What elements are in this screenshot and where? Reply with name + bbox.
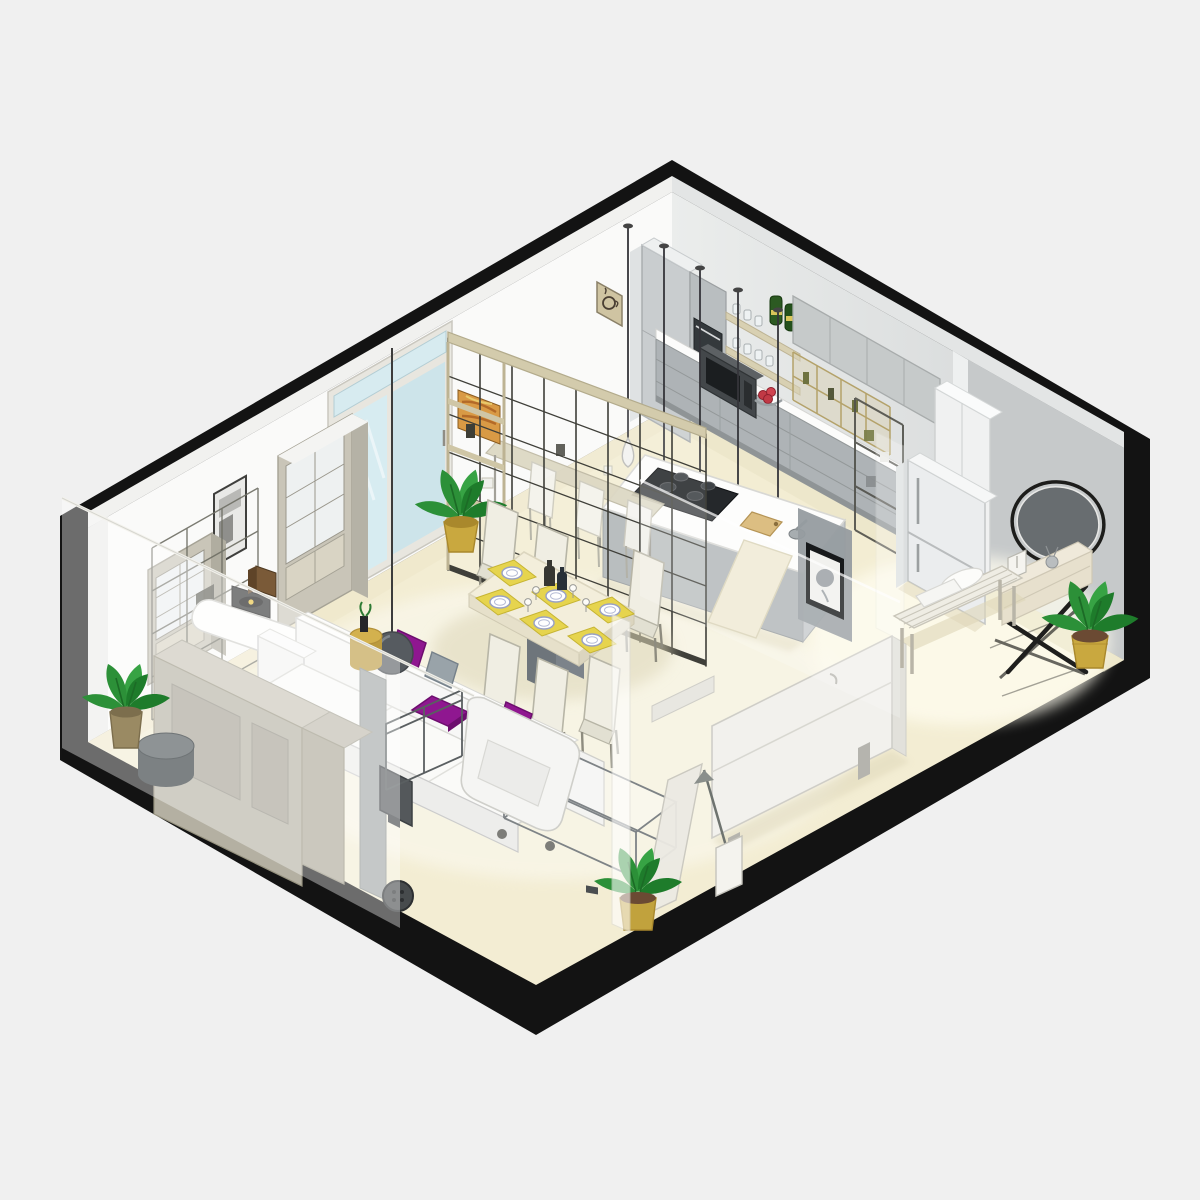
black-vase	[360, 616, 368, 632]
isometric-floorplan-svg	[0, 0, 1200, 1200]
apartment-render	[0, 0, 1200, 1200]
glass-wall-post	[612, 614, 630, 932]
glass-wall-post-right	[876, 432, 904, 642]
gray-pouf	[138, 733, 194, 787]
door-glass-right	[392, 360, 446, 556]
